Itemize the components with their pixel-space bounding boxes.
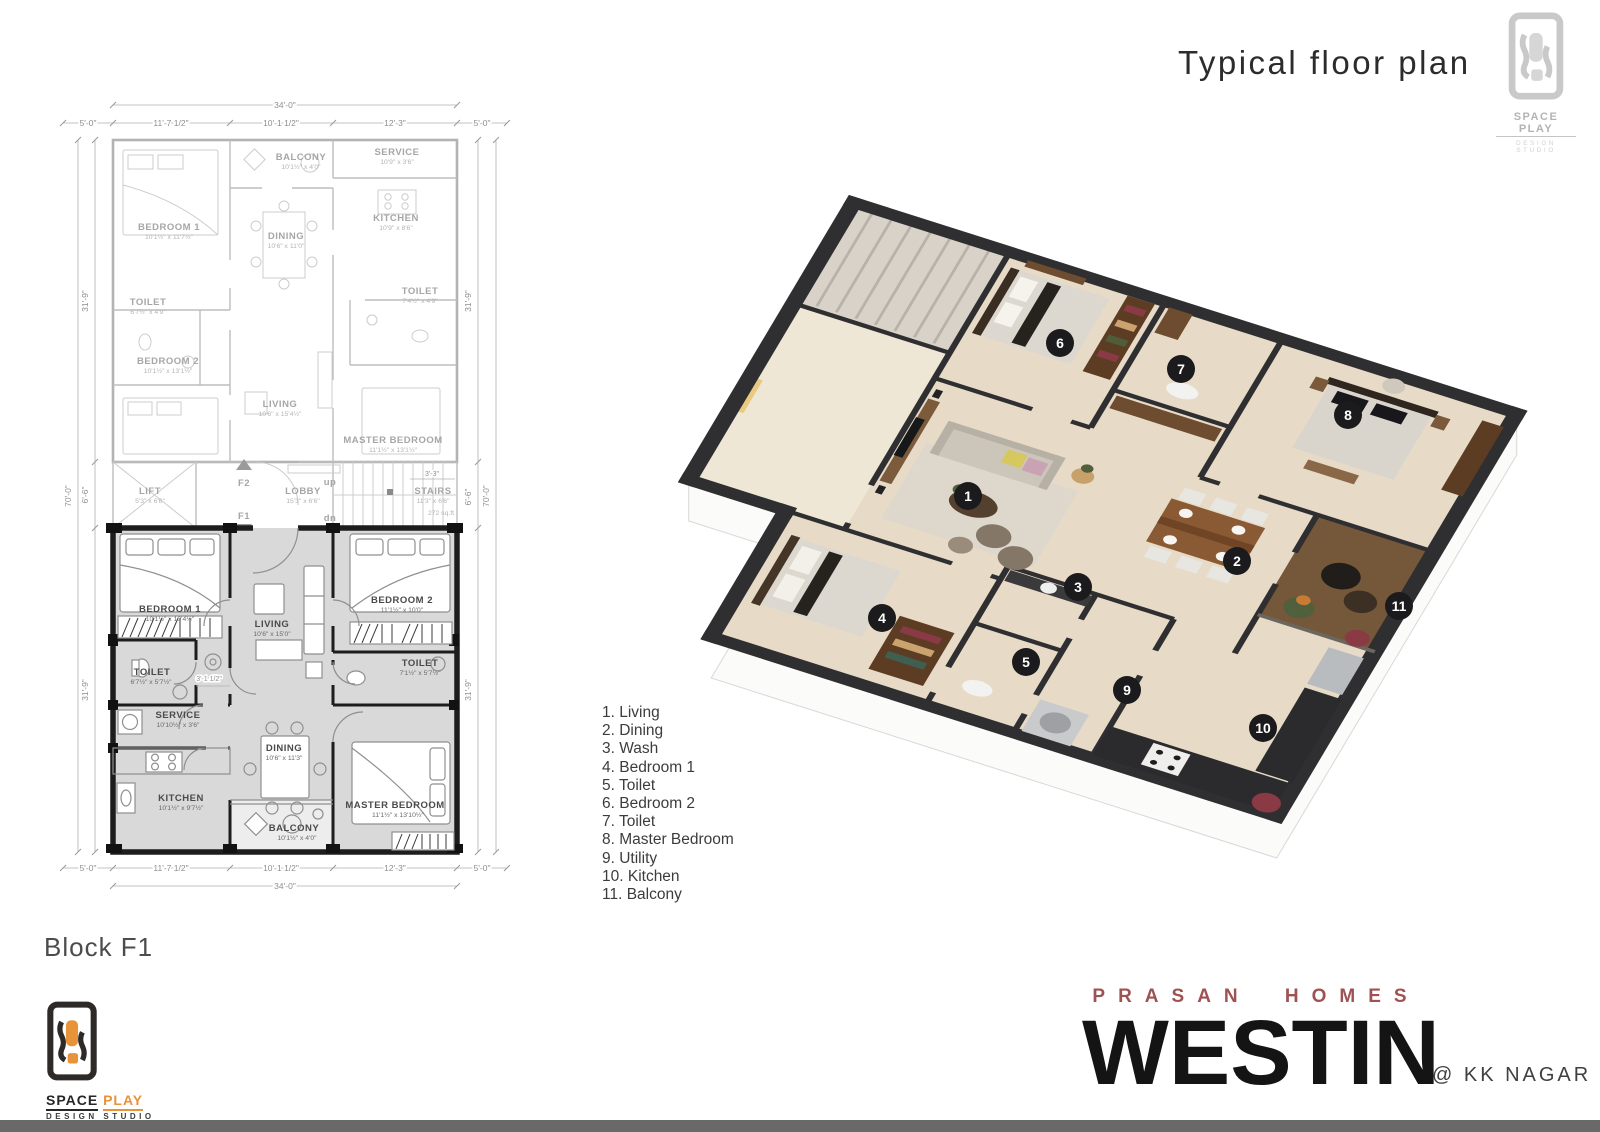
badge-dining: 2: [1223, 547, 1251, 575]
plan-lower-unit: BEDROOM 1 10'1½" x 10'4½" LIVING 10'6" x…: [106, 523, 463, 853]
section-marker-f1: F1: [238, 511, 250, 522]
badge-number: 4: [878, 610, 886, 626]
dim-bay2-top: 10'-1 1/2": [263, 118, 299, 128]
project-name: WESTIN: [1082, 1008, 1430, 1098]
badge-kitchen: 10: [1249, 714, 1277, 742]
room-size: 6'7½" x 5'7½": [130, 678, 172, 686]
badge-number: 2: [1233, 553, 1241, 569]
legend-item: 5. Toilet: [602, 777, 734, 795]
dim-passage: 3'-1 1/2": [196, 676, 222, 683]
badge-number: 8: [1344, 407, 1352, 423]
badge-toilet7: 7: [1167, 355, 1195, 383]
project-location: @ KK NAGAR: [1432, 1064, 1591, 1087]
footer-bar: [0, 1120, 1600, 1132]
dim-right-bottom: 5'-0": [474, 863, 491, 873]
room-size: 10'1½" x 4'0": [281, 163, 321, 171]
room-label: TOILET: [130, 297, 167, 308]
plan-lobby: F2 F1 up dn LIFT 5'3" x 6'6" LOBBY 15'3"…: [113, 459, 457, 535]
room-label: SERVICE: [155, 710, 200, 721]
dim-bay1-bottom: 11'-7 1/2": [153, 863, 188, 873]
dim-height-total-left: 70'-0": [63, 485, 73, 507]
space-play-maze-icon: [46, 1000, 98, 1082]
room-label: TOILET: [134, 667, 171, 678]
room-label: LIVING: [255, 619, 290, 630]
dim-width-total-bottom: 34'-0": [274, 881, 296, 891]
legend-item: 6. Bedroom 2: [602, 795, 734, 813]
badge-number: 6: [1056, 335, 1064, 351]
dim-upper-left: 31'-9": [80, 290, 90, 312]
dim-width-total-top: 34'-0": [274, 100, 296, 110]
room-label: KITCHEN: [158, 793, 204, 804]
dim-stairs-width: 3'-3": [425, 471, 439, 478]
room-label-stairs: STAIRS: [414, 486, 451, 497]
room-label: BEDROOM 2: [371, 595, 433, 606]
room-size: 10'6" x 11'3": [266, 755, 303, 762]
badge-bedroom1: 4: [868, 604, 896, 632]
room-size-lift: 5'3" x 6'6": [135, 498, 165, 505]
studio-logo-bottom: SPACE PLAY DESIGN STUDIO: [46, 1000, 286, 1121]
badge-living: 1: [954, 482, 982, 510]
room-label: SERVICE: [374, 147, 419, 158]
dim-left-top: 5'-0": [80, 118, 97, 128]
room-label: MASTER BEDROOM: [343, 435, 442, 446]
room-size: 6'7½" x 4'9": [130, 308, 166, 316]
studio-name-play: PLAY: [103, 1092, 143, 1111]
room-size: 10'1½" x 9'7½": [159, 804, 204, 812]
room-size: 10'1½" x 10'4½": [146, 615, 195, 623]
badge-utility: 9: [1113, 676, 1141, 704]
dim-left-bottom: 5'-0": [80, 863, 97, 873]
badge-number: 3: [1074, 579, 1082, 595]
room-size: 10'1½" x 4'0": [277, 834, 317, 842]
plan-upper-unit: BALCONY 10'1½" x 4'0" SERVICE 10'9" x 3'…: [113, 140, 457, 505]
badge-number: 10: [1255, 720, 1271, 736]
badge-number: 9: [1123, 682, 1131, 698]
room-label: TOILET: [402, 286, 439, 297]
room-size: 7'1½" x 5'7½": [399, 669, 441, 677]
room-size: 11'1½" x 10'0": [381, 606, 424, 614]
badge-balcony: 11: [1385, 592, 1413, 620]
dim-lobby-right: 6'-6": [463, 489, 473, 506]
room-size: 10'6" x 11'0": [268, 243, 305, 250]
dim-bay3-bottom: 12'-3": [384, 863, 406, 873]
badge-wash: 3: [1064, 573, 1092, 601]
room-label: BEDROOM 1: [139, 604, 201, 615]
room-size: 10'1½" x 11'7½": [145, 233, 194, 241]
dim-bay2-bottom: 10'-1 1/2": [263, 863, 299, 873]
room-label: BEDROOM 2: [137, 356, 199, 367]
room-size: 11'1½" x 13'1½": [369, 446, 418, 454]
legend-item: 1. Living: [602, 704, 734, 722]
badge-master-bedroom: 8: [1334, 401, 1362, 429]
dim-lower-left: 31'-9": [80, 679, 90, 701]
badge-toilet5: 5: [1012, 648, 1040, 676]
room-label: MASTER BEDROOM: [345, 800, 444, 811]
room-size: 10'10½" x 3'6": [157, 721, 201, 729]
legend-item: 10. Kitchen: [602, 868, 734, 886]
dim-lobby-left: 6'-6": [80, 487, 90, 504]
dim-bay1-top: 11'-7 1/2": [153, 118, 188, 128]
room-size: 10'1½" x 13'1½": [144, 367, 193, 375]
room-label: DINING: [268, 231, 304, 242]
room-size: 10'9" x 3'6": [380, 159, 414, 166]
stairs-area: 272 sq.ft: [428, 510, 454, 517]
legend-item: 7. Toilet: [602, 813, 734, 831]
legend-item: 9. Utility: [602, 850, 734, 868]
render-3d: 1 2 3 4 5 6 7 8 9 10 11: [603, 195, 1528, 858]
room-label: TOILET: [402, 658, 439, 669]
room-label: BEDROOM 1: [138, 222, 200, 233]
dim-bay3-top: 12'-3": [384, 118, 406, 128]
room-label: BALCONY: [276, 152, 327, 163]
legend-item: 8. Master Bedroom: [602, 831, 734, 849]
room-legend: 1. Living 2. Dining 3. Wash 4. Bedroom 1…: [602, 704, 734, 904]
dim-right-top: 5'-0": [474, 118, 491, 128]
section-marker-f2: F2: [238, 478, 250, 489]
floor-plan-sheet: { "page": {"title": "Typical floor plan"…: [0, 0, 1600, 1132]
room-label: LIVING: [263, 399, 298, 410]
room-size: 10'9" x 8'6": [379, 225, 413, 232]
project-brand: PRASAN HOMES WESTIN: [1082, 986, 1430, 1098]
room-size-stairs: 11'3" x 6'6": [417, 498, 451, 505]
badge-number: 7: [1177, 361, 1185, 377]
dim-upper-right: 31'-9": [463, 290, 473, 312]
room-size: 10'6" x 15'0": [253, 631, 291, 638]
room-size-lobby: 15'3" x 6'6": [286, 498, 320, 505]
room-label-lobby: LOBBY: [285, 486, 321, 497]
stairs-down-label: dn: [324, 513, 337, 524]
legend-item: 2. Dining: [602, 722, 734, 740]
dim-height-total-right: 70'-0": [481, 485, 491, 507]
legend-item: 3. Wash: [602, 740, 734, 758]
stairs-up-label: up: [324, 477, 337, 488]
plan-canvas: 1 2 3 4 5 6 7 8 9 10 11: [0, 0, 1600, 1132]
studio-name: SPACE PLAY: [46, 1092, 286, 1108]
badge-number: 1: [964, 488, 972, 504]
badge-bedroom2: 6: [1046, 329, 1074, 357]
section-marker-f2-arrow: [236, 459, 252, 470]
room-size: 10'6" x 15'4½": [259, 410, 303, 418]
room-label: BALCONY: [269, 823, 320, 834]
badge-number: 11: [1392, 598, 1407, 614]
studio-name-space: SPACE: [46, 1092, 98, 1111]
dim-lower-right: 31'-9": [463, 679, 473, 701]
room-label: KITCHEN: [373, 213, 419, 224]
badge-number: 5: [1022, 654, 1030, 670]
room-label: DINING: [266, 743, 302, 754]
room-size: 11'1½" x 13'10½": [372, 811, 424, 819]
legend-item: 4. Bedroom 1: [602, 759, 734, 777]
room-size: 7'4½" x 4'9": [402, 297, 438, 305]
legend-item: 11. Balcony: [602, 886, 734, 904]
block-label: Block F1: [44, 932, 153, 963]
room-label-lift: LIFT: [139, 486, 161, 497]
